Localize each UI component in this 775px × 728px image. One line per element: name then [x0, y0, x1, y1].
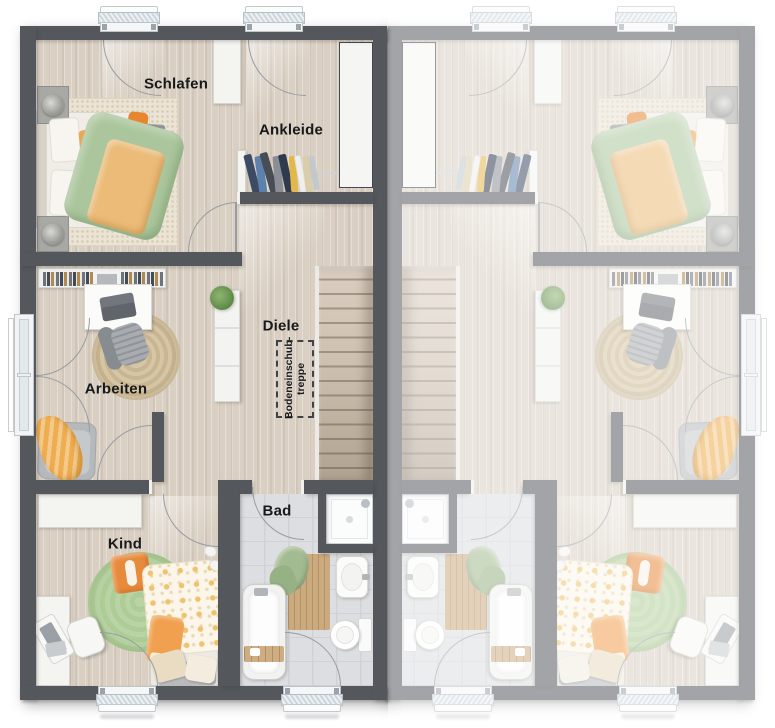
- attic-ladder-label: Bodeneinschub- treppe: [283, 339, 307, 419]
- roof-window: [96, 686, 158, 722]
- pillow: [184, 654, 218, 684]
- soap-icon: [250, 648, 260, 656]
- table-lamp-icon: [42, 223, 64, 245]
- wall-outer-top: [20, 26, 387, 40]
- door-leaf: [235, 202, 237, 254]
- kids-bed: [148, 564, 220, 688]
- faucet-icon: [362, 574, 370, 580]
- toilet-seat: [336, 626, 354, 644]
- drain-icon: [346, 516, 353, 523]
- staircase: [315, 266, 373, 482]
- nightstand: [37, 216, 69, 252]
- light-sheen: [240, 206, 325, 311]
- tub-faucet-icon: [254, 588, 268, 596]
- wall-kind-bad: [218, 480, 240, 686]
- neighbor-fade-overlay: [388, 0, 771, 728]
- door-jamb: [149, 480, 152, 494]
- wall-bad-top-left: [240, 480, 252, 494]
- wall-schlafen-bottom: [20, 252, 242, 266]
- room-label-schlafen: Schlafen: [144, 77, 208, 92]
- partition-cabinet: [213, 38, 241, 104]
- shower: [326, 494, 373, 544]
- wall-shower-side: [318, 494, 326, 550]
- shelf-line: [215, 365, 239, 367]
- toilet-tank: [358, 618, 372, 652]
- bathtub: [242, 584, 286, 680]
- wall-corridor: [36, 480, 152, 494]
- toilet: [330, 616, 372, 654]
- roof-window: [98, 6, 160, 38]
- room-label-kind: Kind: [108, 537, 142, 552]
- wall-party: [373, 26, 387, 700]
- shelf-line: [215, 327, 239, 329]
- basin-bowl: [341, 563, 363, 591]
- room-label-diele: Diele: [263, 319, 300, 334]
- attic-ladder-annotation: Bodeneinschub- treppe: [276, 340, 314, 418]
- roof-window: [281, 686, 343, 722]
- balcony-window: [8, 314, 36, 436]
- wall-stub-diele: [152, 412, 164, 482]
- room-label-bad: Bad: [263, 504, 292, 519]
- wardrobe: [339, 42, 373, 188]
- room-label-arbeiten: Arbeiten: [85, 382, 147, 397]
- wall-ankleide-bottom: [237, 192, 373, 204]
- washbasin: [336, 556, 370, 600]
- floorplan-canvas: Schlafen Ankleide Diele Arbeiten Kind Ba…: [0, 0, 775, 728]
- roof-window: [243, 6, 305, 38]
- potted-plant-icon: [210, 286, 234, 310]
- door-jamb: [301, 480, 304, 494]
- wall-shower-bottom: [318, 544, 373, 553]
- room-label-ankleide: Ankleide: [259, 123, 323, 138]
- door-jamb: [237, 192, 240, 204]
- kids-wardrobe: [38, 494, 142, 528]
- table-lamp-icon: [42, 94, 64, 116]
- wall-bad-top-right: [304, 480, 373, 494]
- showerhead-icon: [361, 499, 370, 508]
